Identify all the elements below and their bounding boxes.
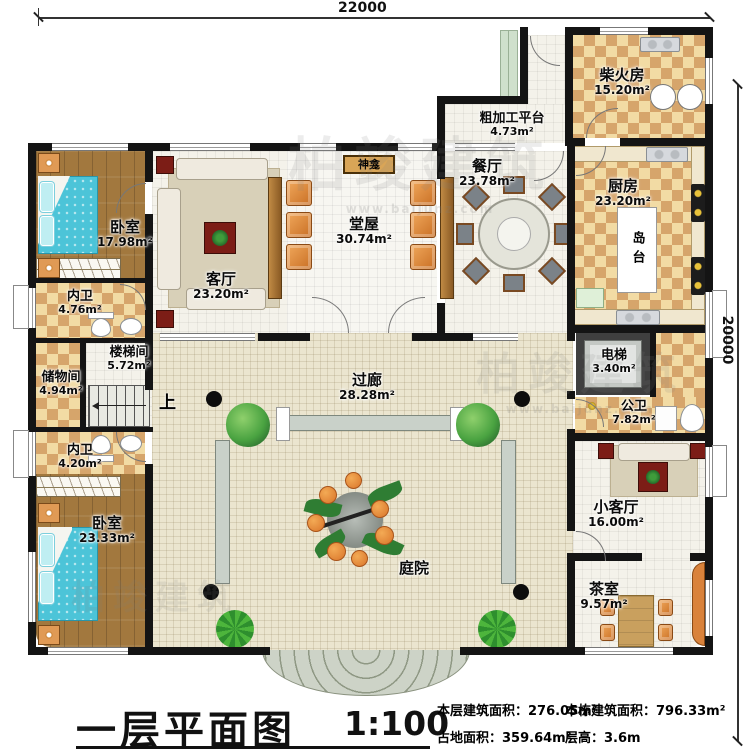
nightstand xyxy=(38,258,60,278)
bay-window xyxy=(13,285,29,329)
dining-chair xyxy=(503,274,525,292)
kitchen-island: 岛台 xyxy=(617,207,657,293)
pillow xyxy=(40,534,54,566)
stairs-direction-line xyxy=(94,405,146,406)
stove xyxy=(691,184,705,222)
kitchen-sink xyxy=(646,147,688,162)
courtyard-pillar xyxy=(206,391,222,407)
water-vat xyxy=(677,84,703,110)
wall xyxy=(145,464,153,647)
wall xyxy=(567,143,575,333)
sofa xyxy=(176,158,268,180)
wall xyxy=(412,333,473,341)
stairs-up-label: 上 xyxy=(159,388,176,413)
wall xyxy=(620,138,713,146)
wall xyxy=(258,333,310,341)
corner-cabinet xyxy=(156,156,174,174)
window xyxy=(48,647,128,655)
floor-plan: 神龛 岛台 xyxy=(0,0,750,754)
pillow xyxy=(40,182,54,212)
fruit xyxy=(345,472,362,489)
extension-wall-left xyxy=(520,27,528,104)
hall-chair xyxy=(286,212,312,238)
room-label-main-hall: 堂屋 30.74m² xyxy=(336,216,392,246)
tea-chair xyxy=(658,624,673,641)
room-label-bedroom2: 卧室 23.33m² xyxy=(79,515,135,545)
stove xyxy=(691,257,705,295)
room-label-elevator: 电梯 3.40m² xyxy=(592,349,635,375)
window xyxy=(705,58,713,104)
drawing-scale: 1:100 xyxy=(344,704,449,743)
room-label-kitchen: 厨房 23.20m² xyxy=(595,178,651,208)
room-label-stairwell: 楼梯间 5.72m² xyxy=(107,346,150,372)
shrine-label: 神龛 xyxy=(358,158,380,171)
wall xyxy=(567,561,575,655)
room-label-prep-platform: 粗加工平台 4.73m² xyxy=(479,112,544,138)
nightstand xyxy=(38,503,60,523)
tea-chair xyxy=(600,624,615,641)
wall xyxy=(565,138,585,146)
bay-window xyxy=(712,445,727,497)
window xyxy=(455,143,515,151)
stairs-arrowhead xyxy=(92,402,99,410)
dining-chair xyxy=(456,223,474,245)
wall xyxy=(575,433,713,441)
round-tree xyxy=(456,403,500,447)
corner-cabinet xyxy=(156,310,174,328)
outdoor-ramp xyxy=(500,30,518,100)
window xyxy=(473,333,518,341)
wall xyxy=(567,333,575,341)
hall-chair xyxy=(410,244,436,270)
room-label-small-living: 小客厅 16.00m² xyxy=(588,499,644,529)
wall xyxy=(145,143,153,182)
pergola-beam-horizontal xyxy=(285,415,451,431)
window xyxy=(160,333,255,341)
window xyxy=(170,143,250,151)
fruit xyxy=(375,526,394,545)
room-label-tea-room: 茶室 9.57m² xyxy=(580,581,627,611)
hall-chair xyxy=(286,180,312,206)
hall-chair xyxy=(410,212,436,238)
dimension-line-top xyxy=(38,17,710,19)
room-label-bedroom1: 卧室 17.98m² xyxy=(97,219,153,249)
courtyard-pillar xyxy=(203,584,219,600)
pillow xyxy=(40,572,54,604)
sofa xyxy=(157,188,181,290)
fruit xyxy=(319,486,337,504)
kitchen-island-label: 岛台 xyxy=(628,231,647,269)
room-label-bath1: 内卫 4.76m² xyxy=(58,290,101,316)
fruit xyxy=(351,550,368,567)
window xyxy=(600,27,648,35)
toilet xyxy=(680,404,704,432)
room-label-dining-room: 餐厅 23.78m² xyxy=(459,158,515,188)
nightstand xyxy=(38,625,60,645)
outdoor-ramp-divider xyxy=(508,30,509,100)
long-altar-table xyxy=(440,177,454,299)
wall xyxy=(690,553,713,561)
wash-basin xyxy=(120,318,142,335)
stat-land-area: 占地面积：359.64m² xyxy=(437,727,571,746)
corner-cabinet xyxy=(598,443,614,459)
dimension-top-value: 22000 xyxy=(338,0,387,16)
round-tree xyxy=(226,403,270,447)
entrance-steps xyxy=(262,650,470,696)
wall xyxy=(28,278,152,283)
room-label-living-room: 客厅 23.20m² xyxy=(193,271,249,301)
water-vat xyxy=(650,84,676,110)
fruit xyxy=(371,500,389,518)
room-label-courtyard: 庭院 xyxy=(399,560,429,577)
tea-chair xyxy=(658,599,673,616)
courtyard-pillar xyxy=(514,391,530,407)
title-underline xyxy=(76,746,430,749)
annex-wall-left xyxy=(565,27,573,143)
prep-wall-top xyxy=(437,96,528,104)
window xyxy=(52,143,128,151)
window xyxy=(705,580,713,636)
bay-window xyxy=(13,430,29,478)
shrine: 神龛 xyxy=(343,155,395,174)
palm-plant xyxy=(216,610,254,648)
room-label-storage: 储物间 4.94m² xyxy=(39,371,82,397)
stat-floor-height: 层高：3.6m xyxy=(565,727,641,746)
pergola-beam-left xyxy=(215,440,230,584)
wall xyxy=(28,338,152,343)
dimension-right-value: 20000 xyxy=(719,310,735,370)
hall-chair xyxy=(286,244,312,270)
wall xyxy=(567,429,575,531)
room-label-firewood-room: 柴火房 15.20m² xyxy=(594,67,650,97)
corner-cabinet xyxy=(690,443,706,459)
window xyxy=(28,552,36,622)
pergola-post xyxy=(276,407,290,441)
window xyxy=(585,647,673,655)
wall xyxy=(437,151,445,179)
wall xyxy=(437,303,445,333)
room-label-corridor: 过廊 28.28m² xyxy=(339,372,395,402)
sofa xyxy=(618,443,690,461)
washing-machine xyxy=(655,406,677,431)
kitchen-sink xyxy=(616,310,660,325)
palm-plant xyxy=(478,610,516,648)
room-label-public-bath: 公卫 7.82m² xyxy=(612,400,655,426)
dimension-ext xyxy=(38,8,39,26)
pergola-beam-right xyxy=(501,440,516,584)
fruit xyxy=(327,542,346,561)
window xyxy=(28,288,36,328)
dining-table-center xyxy=(497,217,531,251)
window xyxy=(28,432,36,476)
window xyxy=(398,143,432,151)
wall xyxy=(567,325,713,333)
pillow xyxy=(40,216,54,246)
prep-wall-left xyxy=(437,96,445,151)
room-label-bath2: 内卫 4.20m² xyxy=(58,444,101,470)
courtyard-pillar xyxy=(513,584,529,600)
potted-plant xyxy=(646,470,660,484)
stat-building-area: 本栋建筑面积：796.33m² xyxy=(565,700,725,719)
potted-plant xyxy=(212,230,228,246)
firewood-sink xyxy=(640,37,680,52)
fruit xyxy=(307,514,325,532)
wardrobe xyxy=(36,476,121,497)
window xyxy=(300,143,336,151)
kitchen-counter-right xyxy=(691,146,705,325)
toilet xyxy=(91,318,111,337)
dimension-line-right xyxy=(737,85,739,742)
fridge xyxy=(576,288,604,308)
long-altar-table xyxy=(268,177,282,299)
nightstand xyxy=(38,153,60,173)
wall xyxy=(567,391,575,399)
hall-chair xyxy=(410,180,436,206)
wall xyxy=(650,333,656,397)
fruit-tree xyxy=(305,470,405,570)
curved-bench xyxy=(692,562,705,646)
